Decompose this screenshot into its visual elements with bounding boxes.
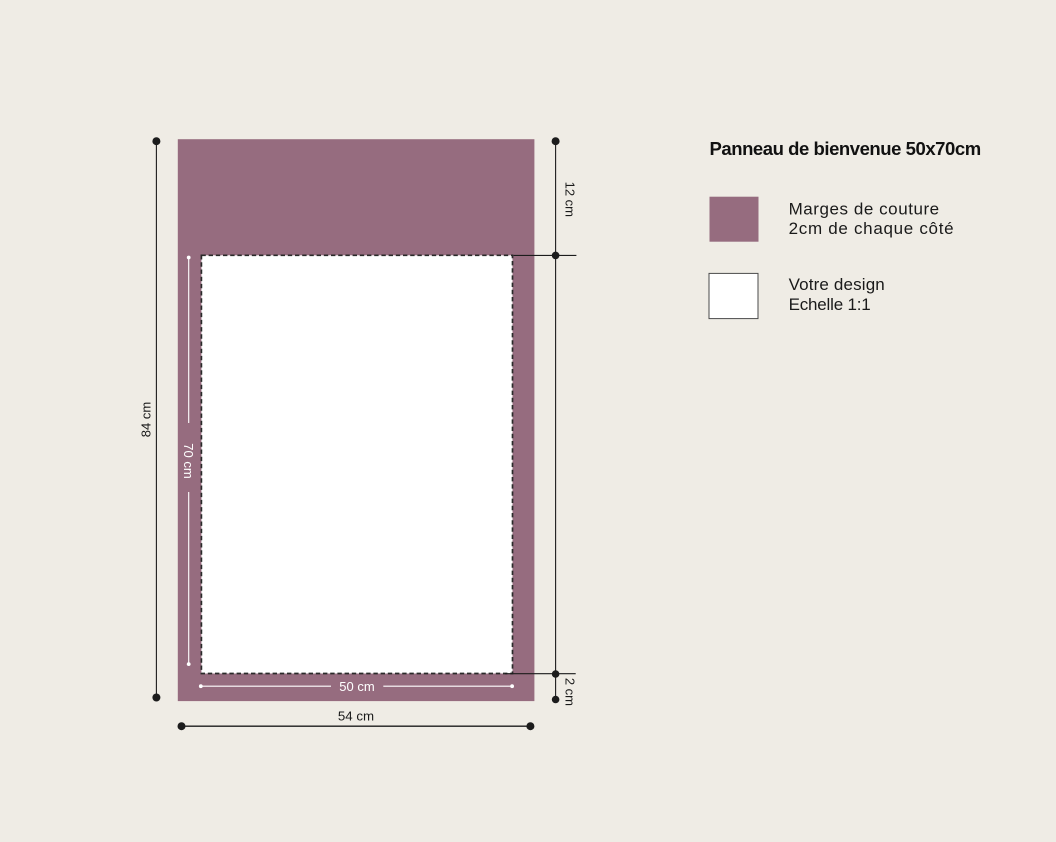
svg-text:12 cm: 12 cm — [563, 182, 578, 217]
svg-text:50 cm: 50 cm — [339, 679, 374, 694]
svg-text:Votre design: Votre design — [789, 275, 885, 294]
svg-text:Echelle 1:1: Echelle 1:1 — [789, 295, 871, 314]
svg-text:Panneau de bienvenue 50x70cm: Panneau de bienvenue 50x70cm — [710, 138, 981, 159]
svg-text:84 cm: 84 cm — [139, 402, 154, 437]
svg-text:54 cm: 54 cm — [338, 708, 374, 723]
svg-text:70 cm: 70 cm — [181, 443, 196, 478]
svg-text:2cm de chaque côté: 2cm de chaque côté — [789, 219, 955, 238]
svg-text:Marges de couture: Marges de couture — [789, 199, 940, 218]
svg-text:2 cm: 2 cm — [563, 678, 578, 706]
